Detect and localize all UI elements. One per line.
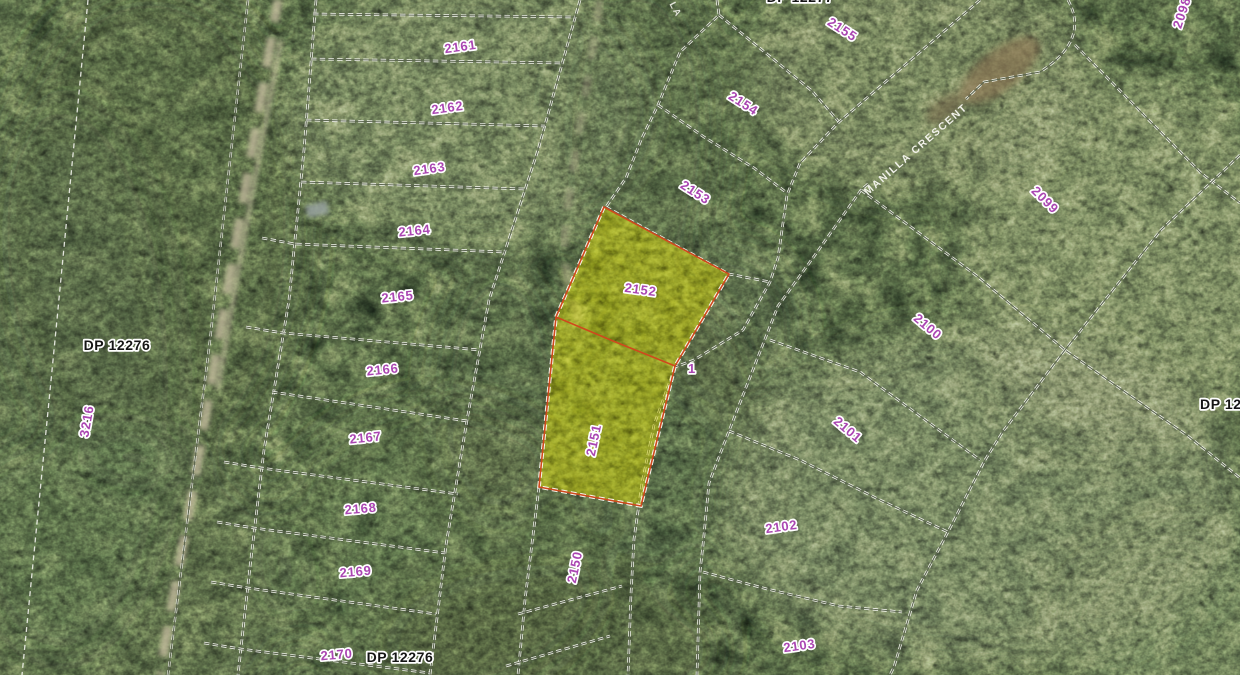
svg-text:1: 1 [688,361,696,376]
svg-text:DP 12276: DP 12276 [84,337,151,353]
svg-text:2169: 2169 [339,563,372,581]
svg-text:DP 12276: DP 12276 [1200,396,1240,412]
svg-text:DP 12277: DP 12277 [767,0,834,5]
svg-text:2168: 2168 [344,500,377,518]
svg-text:DP 12276: DP 12276 [367,649,434,665]
svg-text:2170: 2170 [320,646,353,664]
